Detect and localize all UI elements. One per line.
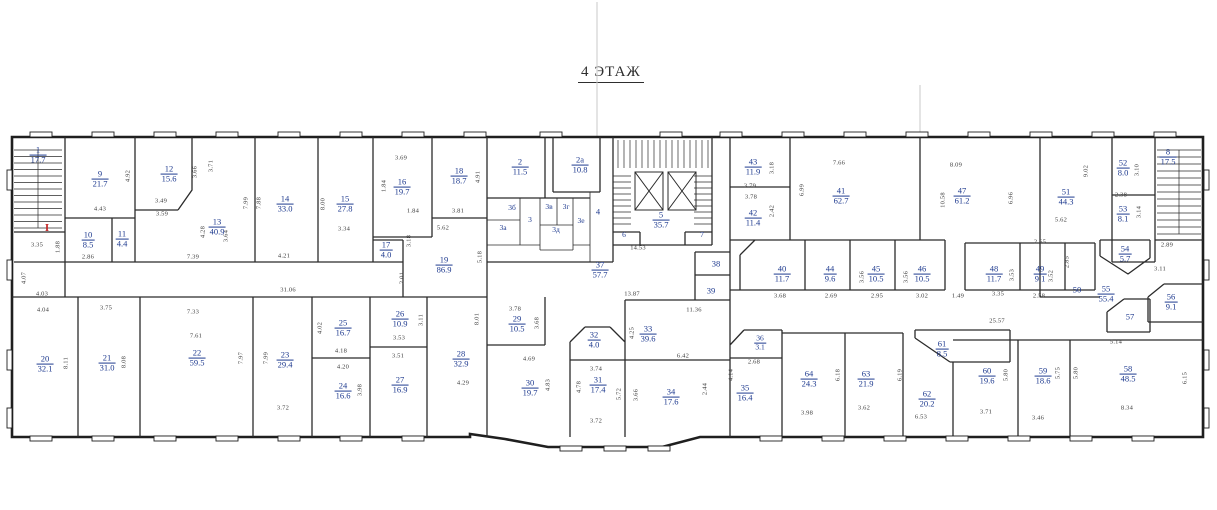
room-label-45: 4510.5 bbox=[868, 265, 885, 284]
room-label-23: 2329.4 bbox=[277, 351, 294, 370]
room-label-24: 2416.6 bbox=[335, 382, 352, 401]
dimension-label: 1.84 bbox=[407, 208, 419, 215]
dimension-label: 7.66 bbox=[833, 160, 845, 167]
dimension-label: 5.72 bbox=[616, 388, 623, 400]
dimension-label: 2.86 bbox=[82, 254, 94, 261]
room-area: 18.6 bbox=[1035, 377, 1052, 386]
dimension-label: 3.71 bbox=[980, 409, 992, 416]
room-area: 55.4 bbox=[1098, 295, 1115, 304]
dimension-label: 4.03 bbox=[36, 291, 48, 298]
room-label-19: 1986.9 bbox=[436, 256, 453, 275]
room-number: 7 bbox=[698, 231, 706, 239]
room-label-3а: 3а bbox=[497, 224, 508, 232]
room-area: 15.6 bbox=[161, 175, 178, 184]
dimension-label: 3.71 bbox=[208, 160, 215, 172]
room-number: 3б bbox=[506, 204, 518, 212]
room-label-64: 6424.3 bbox=[801, 370, 818, 389]
room-label-9: 921.7 bbox=[92, 170, 109, 189]
dimension-label: 3.34 bbox=[338, 226, 350, 233]
room-label-3е: 3е bbox=[575, 217, 586, 225]
dimension-label: 3.72 bbox=[277, 405, 289, 412]
room-area: 9.1 bbox=[1165, 303, 1178, 312]
dimension-label: 3.51 bbox=[392, 353, 404, 360]
section-marker: I bbox=[45, 222, 49, 234]
room-label-50: 50 bbox=[1071, 286, 1084, 295]
room-label-2а: 2а10.8 bbox=[572, 156, 589, 175]
dimension-label: 25.57 bbox=[989, 318, 1005, 325]
dimension-label: 3.18 bbox=[406, 235, 413, 247]
room-area: 5.7 bbox=[1119, 255, 1132, 264]
dimension-label: 3.81 bbox=[452, 208, 464, 215]
room-label-33: 3339.6 bbox=[640, 325, 657, 344]
dimension-label: 5.80 bbox=[1073, 367, 1080, 379]
dimension-label: 31.06 bbox=[280, 287, 296, 294]
room-label-37: 3757.7 bbox=[592, 261, 609, 280]
dimension-label: 3.11 bbox=[418, 314, 425, 326]
room-label-12: 1215.6 bbox=[161, 165, 178, 184]
dimension-label: 4.21 bbox=[278, 253, 290, 260]
room-label-21: 2131.0 bbox=[99, 354, 116, 373]
room-label-26: 2610.9 bbox=[392, 310, 409, 329]
room-number: 38 bbox=[710, 260, 723, 269]
room-label-11: 114.4 bbox=[116, 230, 129, 249]
room-label-31: 3117.4 bbox=[590, 376, 607, 395]
room-area: 48.5 bbox=[1120, 375, 1137, 384]
dimension-label: 3.79 bbox=[744, 183, 756, 190]
room-area: 33.0 bbox=[277, 205, 294, 214]
dimension-label: 10.58 bbox=[940, 192, 947, 208]
room-area: 39.6 bbox=[640, 335, 657, 344]
room-label-59: 5918.6 bbox=[1035, 367, 1052, 386]
dimension-label: 4.18 bbox=[335, 348, 347, 355]
room-label-39: 39 bbox=[705, 287, 718, 296]
dimension-label: 3.02 bbox=[916, 293, 928, 300]
room-area: 31.0 bbox=[99, 364, 116, 373]
room-label-3в: 3в bbox=[543, 203, 554, 211]
room-area: 86.9 bbox=[436, 266, 453, 275]
room-label-36: 363.1 bbox=[754, 335, 766, 352]
room-label-41: 4162.7 bbox=[833, 187, 850, 206]
room-area: 16.9 bbox=[392, 386, 409, 395]
room-label-22: 2259.5 bbox=[189, 349, 206, 368]
room-label-3г: 3г bbox=[561, 203, 572, 211]
dimension-label: 2.69 bbox=[825, 293, 837, 300]
room-label-48: 4811.7 bbox=[986, 265, 1003, 284]
dimension-label: 2.89 bbox=[1161, 242, 1173, 249]
dimension-label: 3.11 bbox=[1154, 266, 1166, 273]
dimension-label: 2.95 bbox=[871, 293, 883, 300]
room-number: 57 bbox=[1124, 313, 1137, 322]
room-area: 17.5 bbox=[1160, 158, 1177, 167]
dimension-label: 8.11 bbox=[63, 357, 70, 369]
dimension-label: 4.07 bbox=[21, 272, 28, 284]
dimension-label: 4.69 bbox=[523, 356, 535, 363]
interior-walls bbox=[12, 137, 1203, 437]
dimension-label: 4.43 bbox=[94, 206, 106, 213]
room-area: 61.2 bbox=[954, 197, 971, 206]
room-label-29: 2910.5 bbox=[509, 315, 526, 334]
dimension-label: 3.78 bbox=[509, 306, 521, 313]
section-break-lines bbox=[597, 2, 920, 137]
room-label-8: 817.5 bbox=[1160, 148, 1177, 167]
dimension-label: 6.19 bbox=[897, 369, 904, 381]
dimension-label: 3.98 bbox=[801, 410, 813, 417]
dimension-label: 2.38 bbox=[1115, 192, 1127, 199]
dimension-label: 5.75 bbox=[1055, 367, 1062, 379]
room-label-15: 1527.8 bbox=[337, 195, 354, 214]
dimension-label: 4.28 bbox=[200, 226, 207, 238]
room-area: 11.7 bbox=[986, 275, 1003, 284]
exterior-wall bbox=[12, 137, 1203, 447]
room-number: 3д bbox=[550, 226, 562, 234]
dimension-label: 2.68 bbox=[748, 359, 760, 366]
room-area: 18.7 bbox=[451, 177, 468, 186]
room-number: 3в bbox=[543, 203, 554, 211]
room-label-5: 535.7 bbox=[653, 211, 670, 230]
elevator-shafts-icon bbox=[635, 172, 696, 210]
room-label-7: 7 bbox=[698, 231, 706, 239]
dimension-label: 3.74 bbox=[590, 366, 602, 373]
dimension-label: 3.53 bbox=[1009, 269, 1016, 281]
room-label-63: 6321.9 bbox=[858, 370, 875, 389]
room-area: 19.6 bbox=[979, 377, 996, 386]
room-label-61: 618.5 bbox=[936, 340, 949, 359]
dimension-label: 1.84 bbox=[381, 180, 388, 192]
room-area: 4.0 bbox=[588, 341, 601, 350]
dimension-label: 8.34 bbox=[1121, 405, 1133, 412]
room-area: 10.5 bbox=[868, 275, 885, 284]
room-area: 11.5 bbox=[512, 168, 529, 177]
dimension-label: 4.92 bbox=[125, 170, 132, 182]
dimension-label: 4.20 bbox=[337, 364, 349, 371]
dimension-label: 7.88 bbox=[256, 197, 263, 209]
room-number: 6 bbox=[620, 231, 628, 239]
dimension-label: 8.00 bbox=[320, 198, 327, 210]
dimension-label: 7.61 bbox=[190, 333, 202, 340]
dimension-label: 3.53 bbox=[393, 335, 405, 342]
room-area: 32.9 bbox=[453, 360, 470, 369]
room-area: 29.4 bbox=[277, 361, 294, 370]
dimension-label: 3.75 bbox=[100, 305, 112, 312]
dimension-label: 3.18 bbox=[769, 162, 776, 174]
dimension-label: 7.97 bbox=[238, 352, 245, 364]
dimension-label: 8.08 bbox=[121, 356, 128, 368]
dimension-label: 7.99 bbox=[243, 197, 250, 209]
room-label-32: 324.0 bbox=[588, 331, 601, 350]
dimension-label: 4.29 bbox=[457, 380, 469, 387]
room-area: 8.1 bbox=[1117, 215, 1130, 224]
room-area: 11.4 bbox=[745, 219, 762, 228]
room-label-20: 2032.1 bbox=[37, 355, 54, 374]
dimension-label: 5.62 bbox=[437, 225, 449, 232]
room-area: 10.8 bbox=[572, 166, 589, 175]
dimension-label: 2.42 bbox=[769, 205, 776, 217]
dimension-label: 2.85 bbox=[1064, 256, 1071, 268]
room-label-27: 2716.9 bbox=[392, 376, 409, 395]
room-number: 39 bbox=[705, 287, 718, 296]
room-label-17: 174.0 bbox=[380, 241, 393, 260]
room-area: 21.7 bbox=[92, 180, 109, 189]
room-number: 3г bbox=[561, 203, 572, 211]
dimension-label: 3.14 bbox=[1136, 206, 1143, 218]
room-area: 8.5 bbox=[82, 241, 95, 250]
dimension-label: 6.53 bbox=[915, 414, 927, 421]
room-label-3б: 3б bbox=[506, 204, 518, 212]
dimension-label: 5.14 bbox=[1110, 339, 1122, 346]
room-label-43: 4311.9 bbox=[745, 158, 762, 177]
room-area: 11.7 bbox=[774, 275, 791, 284]
room-area: 8.0 bbox=[1117, 169, 1130, 178]
dimension-label: 6.99 bbox=[799, 184, 806, 196]
dimension-label: 3.98 bbox=[357, 384, 364, 396]
room-label-25: 2516.7 bbox=[335, 319, 352, 338]
dimension-label: 4.25 bbox=[629, 327, 636, 339]
room-label-42: 4211.4 bbox=[745, 209, 762, 228]
dimension-label: 4.04 bbox=[37, 307, 49, 314]
dimension-label: 3.35 bbox=[31, 242, 43, 249]
room-label-35: 3516.4 bbox=[737, 384, 754, 403]
room-label-47: 4761.2 bbox=[954, 187, 971, 206]
room-area: 40.9 bbox=[209, 228, 226, 237]
dimension-label: 3.59 bbox=[156, 211, 168, 218]
dimension-label: 3.46 bbox=[1032, 415, 1044, 422]
room-label-18: 1818.7 bbox=[451, 167, 468, 186]
room-area: 4.0 bbox=[380, 251, 393, 260]
room-label-46: 4610.5 bbox=[914, 265, 931, 284]
room-area: 4.4 bbox=[116, 240, 129, 249]
dimension-label: 5.80 bbox=[1003, 369, 1010, 381]
room-label-49: 499.1 bbox=[1034, 265, 1047, 284]
room-area: 11.9 bbox=[745, 168, 762, 177]
room-number: 50 bbox=[1071, 286, 1084, 295]
dimension-label: 3.35 bbox=[992, 291, 1004, 298]
dimension-label: 3.66 bbox=[633, 389, 640, 401]
room-label-57: 57 bbox=[1124, 313, 1137, 322]
room-area: 35.7 bbox=[653, 221, 670, 230]
dimension-label: 7.99 bbox=[263, 352, 270, 364]
room-label-1: 117.7 bbox=[30, 146, 47, 165]
dimension-label: 11.36 bbox=[686, 307, 701, 314]
room-area: 62.7 bbox=[833, 197, 850, 206]
room-area: 9.6 bbox=[824, 275, 837, 284]
dimension-label: 3.66 bbox=[192, 166, 199, 178]
room-label-54: 545.7 bbox=[1119, 245, 1132, 264]
room-label-40: 4011.7 bbox=[774, 265, 791, 284]
room-area: 24.3 bbox=[801, 380, 818, 389]
room-label-62: 6220.2 bbox=[919, 390, 936, 409]
room-area: 16.6 bbox=[335, 392, 352, 401]
room-label-13: 1340.9 bbox=[209, 218, 226, 237]
room-label-52: 528.0 bbox=[1117, 159, 1130, 178]
room-label-14: 1433.0 bbox=[277, 195, 294, 214]
dimension-label: 6.15 bbox=[1182, 372, 1189, 384]
dimension-label: 4.14 bbox=[728, 369, 735, 381]
room-label-4: 4 bbox=[594, 208, 602, 217]
dimension-label: 3.78 bbox=[745, 194, 757, 201]
room-label-3д: 3д bbox=[550, 226, 562, 234]
dimension-label: 4.83 bbox=[545, 379, 552, 391]
room-area: 17.6 bbox=[663, 398, 680, 407]
dimension-label: 3.62 bbox=[858, 405, 870, 412]
room-area: 20.2 bbox=[919, 400, 936, 409]
room-label-30: 3019.7 bbox=[522, 379, 539, 398]
room-label-3: 3 bbox=[526, 216, 534, 224]
dimension-label: 5.18 bbox=[477, 251, 484, 263]
room-area: 16.7 bbox=[335, 329, 352, 338]
room-number: 3а bbox=[497, 224, 508, 232]
dimension-label: 2.44 bbox=[702, 383, 709, 395]
dimension-label: 4.02 bbox=[317, 322, 324, 334]
dimension-label: 3.56 bbox=[859, 271, 866, 283]
room-area: 19.7 bbox=[394, 188, 411, 197]
floorplan-canvas: 4 ЭТАЖ 117.7921.71215.61340.9108.5114.41… bbox=[0, 0, 1217, 510]
room-area: 8.5 bbox=[936, 350, 949, 359]
room-label-55: 5555.4 bbox=[1098, 285, 1115, 304]
room-label-53: 538.1 bbox=[1117, 205, 1130, 224]
room-label-44: 449.6 bbox=[824, 265, 837, 284]
room-area: 10.5 bbox=[914, 275, 931, 284]
room-number: 3 bbox=[526, 216, 534, 224]
room-number: 4 bbox=[594, 208, 602, 217]
dimension-label: 8.01 bbox=[474, 313, 481, 325]
dimension-label: 8.09 bbox=[950, 162, 962, 169]
dimension-label: 3.52 bbox=[1048, 270, 1055, 282]
room-label-58: 5848.5 bbox=[1120, 365, 1137, 384]
room-area: 16.4 bbox=[737, 394, 754, 403]
room-area: 57.7 bbox=[592, 271, 609, 280]
room-label-34: 3417.6 bbox=[663, 388, 680, 407]
room-area: 27.8 bbox=[337, 205, 354, 214]
dimension-label: 3.72 bbox=[590, 418, 602, 425]
room-area: 59.5 bbox=[189, 359, 206, 368]
room-label-51: 5144.3 bbox=[1058, 188, 1075, 207]
dimension-label: 5.62 bbox=[1055, 217, 1067, 224]
room-label-56: 569.1 bbox=[1165, 293, 1178, 312]
room-area: 10.9 bbox=[392, 320, 409, 329]
dimension-label: 13.87 bbox=[624, 291, 640, 298]
dimension-label: 3.49 bbox=[155, 198, 167, 205]
dimension-label: 3.56 bbox=[903, 271, 910, 283]
room-area: 17.7 bbox=[30, 156, 47, 165]
room-area: 32.1 bbox=[37, 365, 54, 374]
dimension-label: 4.78 bbox=[576, 381, 583, 393]
dimension-label: 7.39 bbox=[187, 254, 199, 261]
dimension-label: 7.33 bbox=[187, 309, 199, 316]
dimension-label: 3.68 bbox=[774, 293, 786, 300]
room-label-16: 1619.7 bbox=[394, 178, 411, 197]
room-area: 3.1 bbox=[754, 344, 766, 352]
room-label-6: 6 bbox=[620, 231, 628, 239]
dimension-label: 3.68 bbox=[534, 317, 541, 329]
dimension-label: 2.65 bbox=[1034, 239, 1046, 246]
room-area: 19.7 bbox=[522, 389, 539, 398]
dimension-label: 6.96 bbox=[1008, 192, 1015, 204]
room-label-28: 2832.9 bbox=[453, 350, 470, 369]
dimension-label: 14.53 bbox=[630, 245, 646, 252]
dimension-label: 1.49 bbox=[952, 293, 964, 300]
dimension-label: 6.42 bbox=[677, 353, 689, 360]
room-label-60: 6019.6 bbox=[979, 367, 996, 386]
room-area: 10.5 bbox=[509, 325, 526, 334]
room-number: 3е bbox=[575, 217, 586, 225]
room-area: 17.4 bbox=[590, 386, 607, 395]
dimension-label: 3.10 bbox=[1134, 164, 1141, 176]
dimension-label: 2.58 bbox=[1033, 293, 1045, 300]
room-area: 44.3 bbox=[1058, 198, 1075, 207]
dimension-label: 1.88 bbox=[55, 241, 62, 253]
floorplan-walls bbox=[0, 0, 1217, 510]
room-area: 21.9 bbox=[858, 380, 875, 389]
dimension-label: 2.01 bbox=[399, 272, 406, 284]
room-label-2: 211.5 bbox=[512, 158, 529, 177]
dimension-label: 9.02 bbox=[1083, 165, 1090, 177]
dimension-label: 6.18 bbox=[835, 369, 842, 381]
room-label-38: 38 bbox=[710, 260, 723, 269]
dimension-label: 4.91 bbox=[475, 171, 482, 183]
pilasters bbox=[7, 132, 1209, 451]
room-label-10: 108.5 bbox=[82, 231, 95, 250]
dimension-label: 3.69 bbox=[395, 155, 407, 162]
room-area: 9.1 bbox=[1034, 275, 1047, 284]
